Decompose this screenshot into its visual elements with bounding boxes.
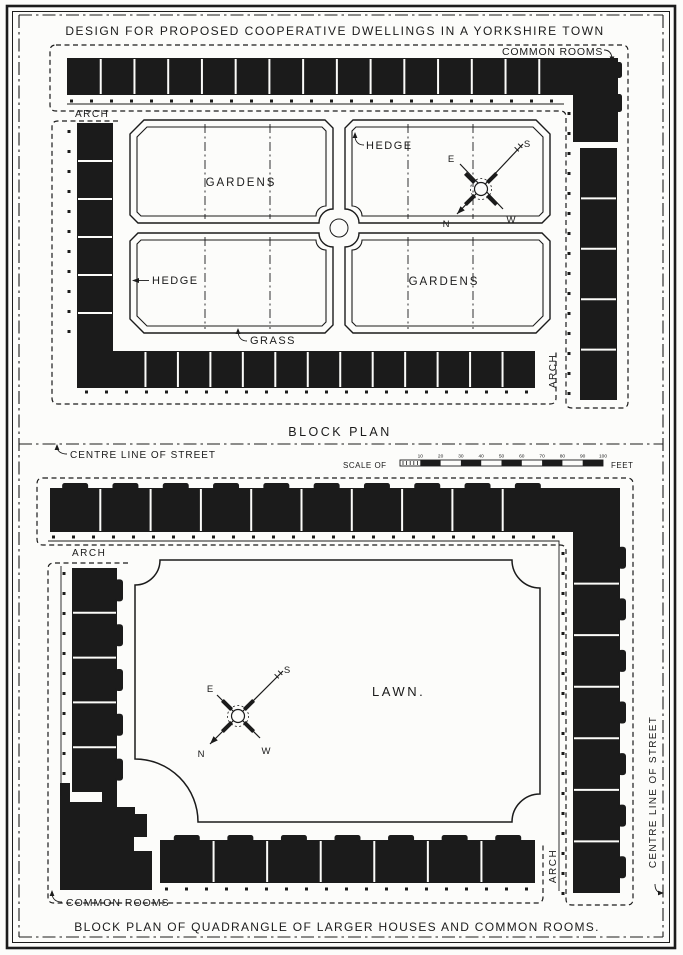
lawn-label: LAWN. xyxy=(372,684,425,699)
scale-bar-segment xyxy=(583,460,603,466)
bay-window-bump xyxy=(618,650,626,672)
street-label-left: CENTRE LINE OF STREET xyxy=(70,450,216,461)
compass-hub-icon xyxy=(475,183,488,196)
top-compass-w: W xyxy=(507,215,516,226)
scale-tick-label: 20 xyxy=(438,454,444,460)
sheet-title: DESIGN FOR PROPOSED COOPERATIVE DWELLING… xyxy=(65,24,604,38)
bay-window-bump xyxy=(618,753,626,775)
house-block xyxy=(67,58,573,95)
drawing-sheet: DESIGN FOR PROPOSED COOPERATIVE DWELLING… xyxy=(0,0,683,955)
garden-plots xyxy=(130,120,550,333)
bottom-plan-ne-corner-block xyxy=(553,488,620,532)
top-compass-e: E xyxy=(448,154,454,165)
street-left-arrowhead-icon xyxy=(55,444,60,450)
bottom-plan-north-terrace xyxy=(50,483,553,532)
bottom-plan-caption: BLOCK PLAN OF QUADRANGLE OF LARGER HOUSE… xyxy=(74,920,599,934)
garden-outer-line xyxy=(130,120,333,223)
house-block xyxy=(580,148,617,400)
bay-window-bump xyxy=(263,483,289,490)
bottom-common-rooms-label: COMMON ROOMS xyxy=(66,897,170,909)
bay-window-bump xyxy=(115,669,123,691)
hedge-lower-arrowhead-icon xyxy=(132,278,139,283)
bay-window-bump xyxy=(465,483,491,490)
bay-window-bump xyxy=(618,805,626,827)
bottom-compass-n: N xyxy=(198,749,205,760)
gardens-upper-label: GARDENS xyxy=(206,177,277,189)
top-plan-sw-corner-block xyxy=(77,351,113,388)
top-plan-east-terrace xyxy=(580,148,617,400)
garden-centre-circle xyxy=(330,219,348,237)
garden-outer-line xyxy=(345,120,550,223)
bay-window-bump xyxy=(618,547,626,569)
scale-bar: 102030405060708090100 xyxy=(400,454,607,467)
scale-tick-label: 10 xyxy=(418,454,424,460)
scale-bar-segment xyxy=(420,460,440,466)
hedge-lower-label: HEDGE xyxy=(152,275,199,287)
top-plan-south-terrace xyxy=(113,351,535,388)
block-plan-drawing: DESIGN FOR PROPOSED COOPERATIVE DWELLING… xyxy=(0,0,683,955)
bay-window-bump xyxy=(227,835,253,842)
bottom-plan-common-rooms-block xyxy=(60,783,152,890)
house-block xyxy=(72,568,117,792)
bay-window-bump xyxy=(364,483,390,490)
top-common-rooms-label: COMMON ROOMS xyxy=(502,46,603,58)
house-block xyxy=(573,532,620,893)
garden-hedge-line xyxy=(137,127,326,216)
garden-plot-nw xyxy=(130,120,333,223)
gardens-lower-label: GARDENS xyxy=(409,276,480,288)
top-plan-caption: BLOCK PLAN xyxy=(288,425,392,439)
bay-window-bump xyxy=(442,835,468,842)
hedge-upper-arrowhead-icon xyxy=(353,132,358,138)
hedge-upper-label: HEDGE xyxy=(366,140,413,152)
bottom-compass-e: E xyxy=(207,684,213,695)
house-block xyxy=(160,840,535,883)
scale-suffix-label: FEET xyxy=(611,461,633,470)
scale-bar-segment xyxy=(502,460,522,466)
bay-window-bump xyxy=(618,598,626,620)
bottom-common-rooms-arrowhead-icon xyxy=(50,890,55,896)
scale-tick-label: 60 xyxy=(519,454,525,460)
bottom-arch-north-label: ARCH xyxy=(72,548,106,559)
bay-window-bump xyxy=(618,856,626,878)
grass-label: GRASS xyxy=(250,335,296,347)
bottom-plan-south-terrace xyxy=(160,835,535,883)
bay-window-bump xyxy=(388,835,414,842)
scale-tick-label: 30 xyxy=(458,454,464,460)
bottom-arch-east-label: ARCH xyxy=(548,849,559,883)
scale-tick-label: 70 xyxy=(539,454,545,460)
bottom-plan-west-terrace xyxy=(72,568,123,792)
bay-window-bump xyxy=(112,483,138,490)
bay-window-bump xyxy=(495,835,521,842)
scale-tick-label: 90 xyxy=(580,454,586,460)
bay-window-bump xyxy=(115,714,123,736)
house-block xyxy=(553,488,620,532)
scale-tick-label: 80 xyxy=(560,454,566,460)
bay-window-bump xyxy=(163,483,189,490)
bay-window-bump xyxy=(174,835,200,842)
top-arch-east-label: ARCH xyxy=(548,354,559,388)
garden-plot-ne xyxy=(345,120,550,223)
top-plan-common-rooms-block xyxy=(573,58,622,144)
scale-tick-label: 40 xyxy=(479,454,485,460)
bottom-plan-east-terrace xyxy=(573,532,626,893)
scale-bar-segment xyxy=(542,460,562,466)
top-compass-s: S xyxy=(524,139,530,150)
bottom-compass-w: W xyxy=(262,746,271,757)
bay-window-bump xyxy=(281,835,307,842)
scale-bar-segment xyxy=(461,460,481,466)
bottom-compass-s: S xyxy=(284,665,290,676)
bottom-compass-rose: S E N W xyxy=(198,665,291,760)
hedge-upper-arrow-icon xyxy=(355,137,364,145)
top-plan-west-terrace xyxy=(77,123,113,351)
bay-window-bump xyxy=(213,483,239,490)
scale-tick-label: 50 xyxy=(499,454,505,460)
bay-window-bump xyxy=(115,759,123,781)
house-block xyxy=(77,351,113,388)
top-compass-n: N xyxy=(443,219,450,230)
bay-window-bump xyxy=(335,835,361,842)
scale-prefix-label: SCALE OF xyxy=(343,461,387,470)
house-block xyxy=(113,351,535,388)
bay-window-bump xyxy=(314,483,340,490)
bay-window-bump xyxy=(115,624,123,646)
bay-window-bump xyxy=(62,483,88,490)
bay-window-bump xyxy=(414,483,440,490)
bay-window-bump xyxy=(115,579,123,601)
top-plan-houses xyxy=(67,58,617,400)
bay-window-bump xyxy=(515,483,541,490)
street-label-right: CENTRE LINE OF STREET xyxy=(648,716,659,868)
scale-tick-label: 100 xyxy=(599,454,607,460)
top-plan-north-terrace xyxy=(67,58,573,95)
bay-window-bump xyxy=(618,702,626,724)
top-arch-north-label: ARCH xyxy=(75,109,109,120)
lawn-boundary xyxy=(135,560,540,822)
compass-hub-icon xyxy=(232,710,245,723)
grass-arrowhead-icon xyxy=(236,328,241,334)
